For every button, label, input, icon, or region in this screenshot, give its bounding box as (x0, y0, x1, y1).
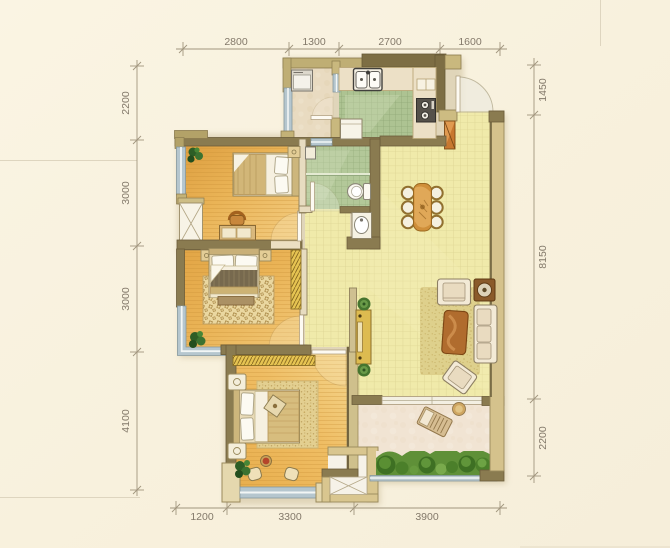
svg-text:3000: 3000 (120, 287, 132, 311)
svg-text:4100: 4100 (120, 409, 132, 433)
svg-text:3000: 3000 (120, 181, 132, 205)
svg-text:3900: 3900 (415, 511, 439, 523)
svg-text:3300: 3300 (278, 511, 302, 523)
svg-text:8150: 8150 (537, 245, 549, 269)
svg-text:2200: 2200 (537, 426, 549, 450)
svg-text:1600: 1600 (458, 36, 482, 48)
svg-text:2800: 2800 (224, 36, 248, 48)
svg-text:1300: 1300 (302, 36, 326, 48)
svg-text:1450: 1450 (537, 78, 549, 102)
svg-text:2700: 2700 (378, 36, 402, 48)
svg-text:1200: 1200 (190, 511, 214, 523)
svg-text:2200: 2200 (120, 91, 132, 115)
